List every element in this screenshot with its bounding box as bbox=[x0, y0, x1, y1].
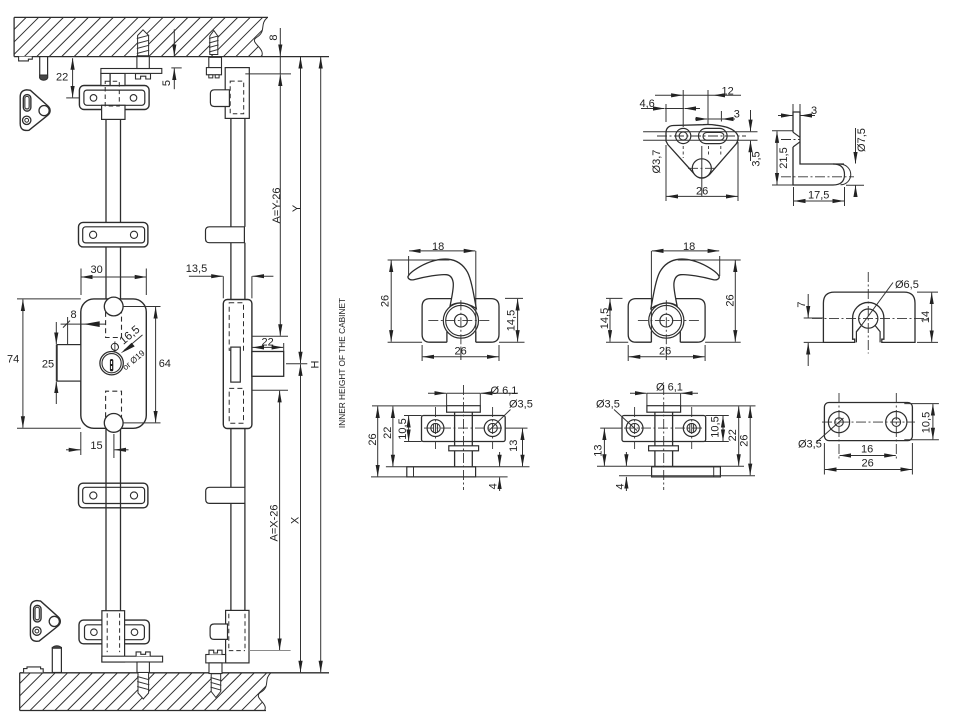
svg-text:74: 74 bbox=[7, 353, 19, 365]
svg-text:Ø6,5: Ø6,5 bbox=[895, 279, 919, 291]
svg-text:Ø 6,1: Ø 6,1 bbox=[491, 385, 518, 397]
svg-text:18: 18 bbox=[683, 241, 695, 253]
svg-text:26: 26 bbox=[367, 433, 379, 445]
svg-text:Ø7,5: Ø7,5 bbox=[856, 128, 868, 152]
svg-text:14: 14 bbox=[920, 311, 932, 323]
svg-text:10,5: 10,5 bbox=[397, 418, 409, 439]
svg-text:10,5: 10,5 bbox=[920, 412, 932, 433]
svg-text:26: 26 bbox=[380, 295, 392, 307]
svg-text:30: 30 bbox=[91, 264, 103, 276]
svg-text:Ø3,5: Ø3,5 bbox=[798, 439, 822, 451]
svg-text:22: 22 bbox=[56, 72, 68, 84]
svg-text:13: 13 bbox=[508, 440, 520, 452]
svg-text:26: 26 bbox=[725, 294, 737, 306]
svg-text:12: 12 bbox=[722, 86, 734, 98]
svg-text:21,5: 21,5 bbox=[778, 147, 790, 168]
svg-text:15: 15 bbox=[90, 440, 102, 452]
svg-text:14,5: 14,5 bbox=[599, 308, 611, 329]
svg-text:26: 26 bbox=[739, 434, 751, 446]
svg-text:4: 4 bbox=[488, 483, 500, 489]
svg-text:A=X-26: A=X-26 bbox=[269, 505, 281, 542]
svg-text:Ø3,5: Ø3,5 bbox=[596, 399, 620, 411]
svg-text:26: 26 bbox=[696, 185, 708, 197]
svg-text:A=Y-26: A=Y-26 bbox=[271, 188, 283, 224]
svg-text:22: 22 bbox=[727, 429, 739, 441]
svg-text:64: 64 bbox=[159, 358, 171, 370]
svg-text:13,5: 13,5 bbox=[186, 263, 207, 275]
svg-text:3,5: 3,5 bbox=[751, 151, 763, 166]
svg-text:8: 8 bbox=[71, 309, 77, 321]
svg-text:14,5: 14,5 bbox=[506, 310, 518, 331]
svg-text:13: 13 bbox=[593, 444, 605, 456]
svg-text:Ø3,7: Ø3,7 bbox=[651, 150, 663, 174]
svg-text:10,5: 10,5 bbox=[709, 416, 721, 437]
svg-text:17,5: 17,5 bbox=[808, 190, 829, 202]
svg-text:Ø 6,1: Ø 6,1 bbox=[656, 382, 683, 394]
svg-text:X: X bbox=[289, 516, 301, 524]
svg-text:18: 18 bbox=[432, 241, 444, 253]
svg-text:22: 22 bbox=[262, 336, 274, 348]
svg-text:3: 3 bbox=[734, 109, 740, 121]
svg-text:22: 22 bbox=[382, 427, 394, 439]
svg-text:5: 5 bbox=[161, 80, 173, 86]
svg-text:26: 26 bbox=[862, 458, 874, 470]
svg-text:26: 26 bbox=[659, 345, 671, 357]
svg-text:H: H bbox=[309, 360, 321, 368]
svg-text:Y: Y bbox=[291, 204, 303, 212]
svg-text:4,6: 4,6 bbox=[640, 98, 655, 110]
svg-text:25: 25 bbox=[42, 358, 54, 370]
svg-text:8: 8 bbox=[268, 34, 280, 40]
svg-text:26: 26 bbox=[455, 345, 467, 357]
svg-text:3: 3 bbox=[811, 105, 817, 117]
svg-text:INNER HEIGHT OF THE CABINET: INNER HEIGHT OF THE CABINET bbox=[337, 298, 347, 428]
svg-text:7: 7 bbox=[796, 301, 808, 307]
svg-text:4: 4 bbox=[615, 483, 627, 489]
svg-text:Ø3,5: Ø3,5 bbox=[509, 399, 533, 411]
svg-text:16: 16 bbox=[861, 444, 873, 456]
